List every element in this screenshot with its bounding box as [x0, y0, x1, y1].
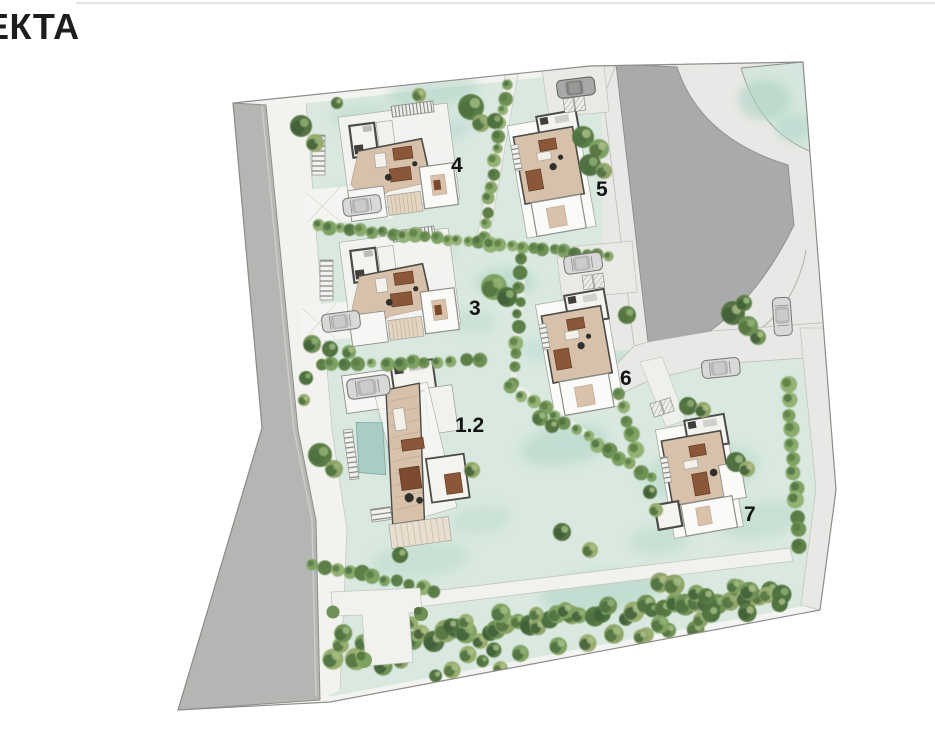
svg-text:7: 7 [744, 503, 756, 526]
svg-text:4: 4 [451, 154, 463, 177]
svg-text:5: 5 [596, 178, 608, 201]
svg-text:6: 6 [620, 367, 632, 390]
svg-text:3: 3 [469, 297, 481, 320]
svg-text:1.2: 1.2 [455, 414, 484, 437]
